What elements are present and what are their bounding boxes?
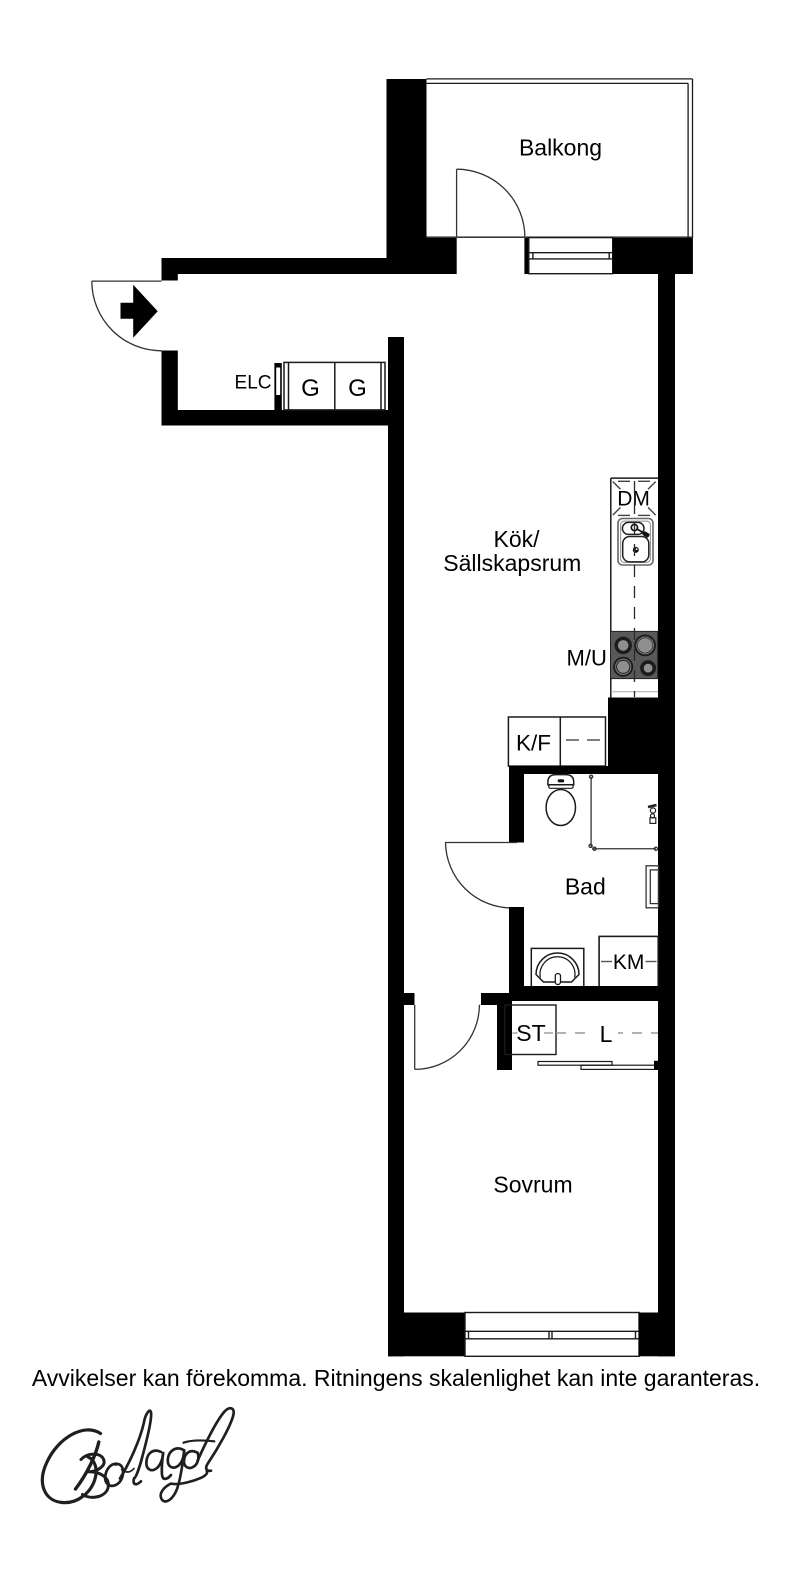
svg-text:ST: ST bbox=[516, 1020, 545, 1046]
svg-text:KM: KM bbox=[613, 951, 645, 974]
svg-text:L: L bbox=[600, 1021, 613, 1047]
svg-text:Avvikelser kan förekomma. Ritn: Avvikelser kan förekomma. Ritningens ska… bbox=[32, 1365, 760, 1391]
svg-text:Balkong: Balkong bbox=[519, 135, 602, 161]
svg-text:Kök/: Kök/ bbox=[493, 526, 540, 552]
svg-text:K/F: K/F bbox=[516, 730, 551, 755]
svg-text:ELC: ELC bbox=[235, 373, 272, 394]
svg-text:DM: DM bbox=[617, 488, 650, 511]
svg-text:Bad: Bad bbox=[565, 873, 606, 899]
svg-text:G: G bbox=[301, 375, 320, 402]
svg-text:Sällskapsrum: Sällskapsrum bbox=[443, 550, 581, 576]
svg-text:G: G bbox=[348, 375, 367, 402]
svg-text:Sovrum: Sovrum bbox=[493, 1171, 572, 1197]
svg-text:M/U: M/U bbox=[567, 646, 607, 671]
